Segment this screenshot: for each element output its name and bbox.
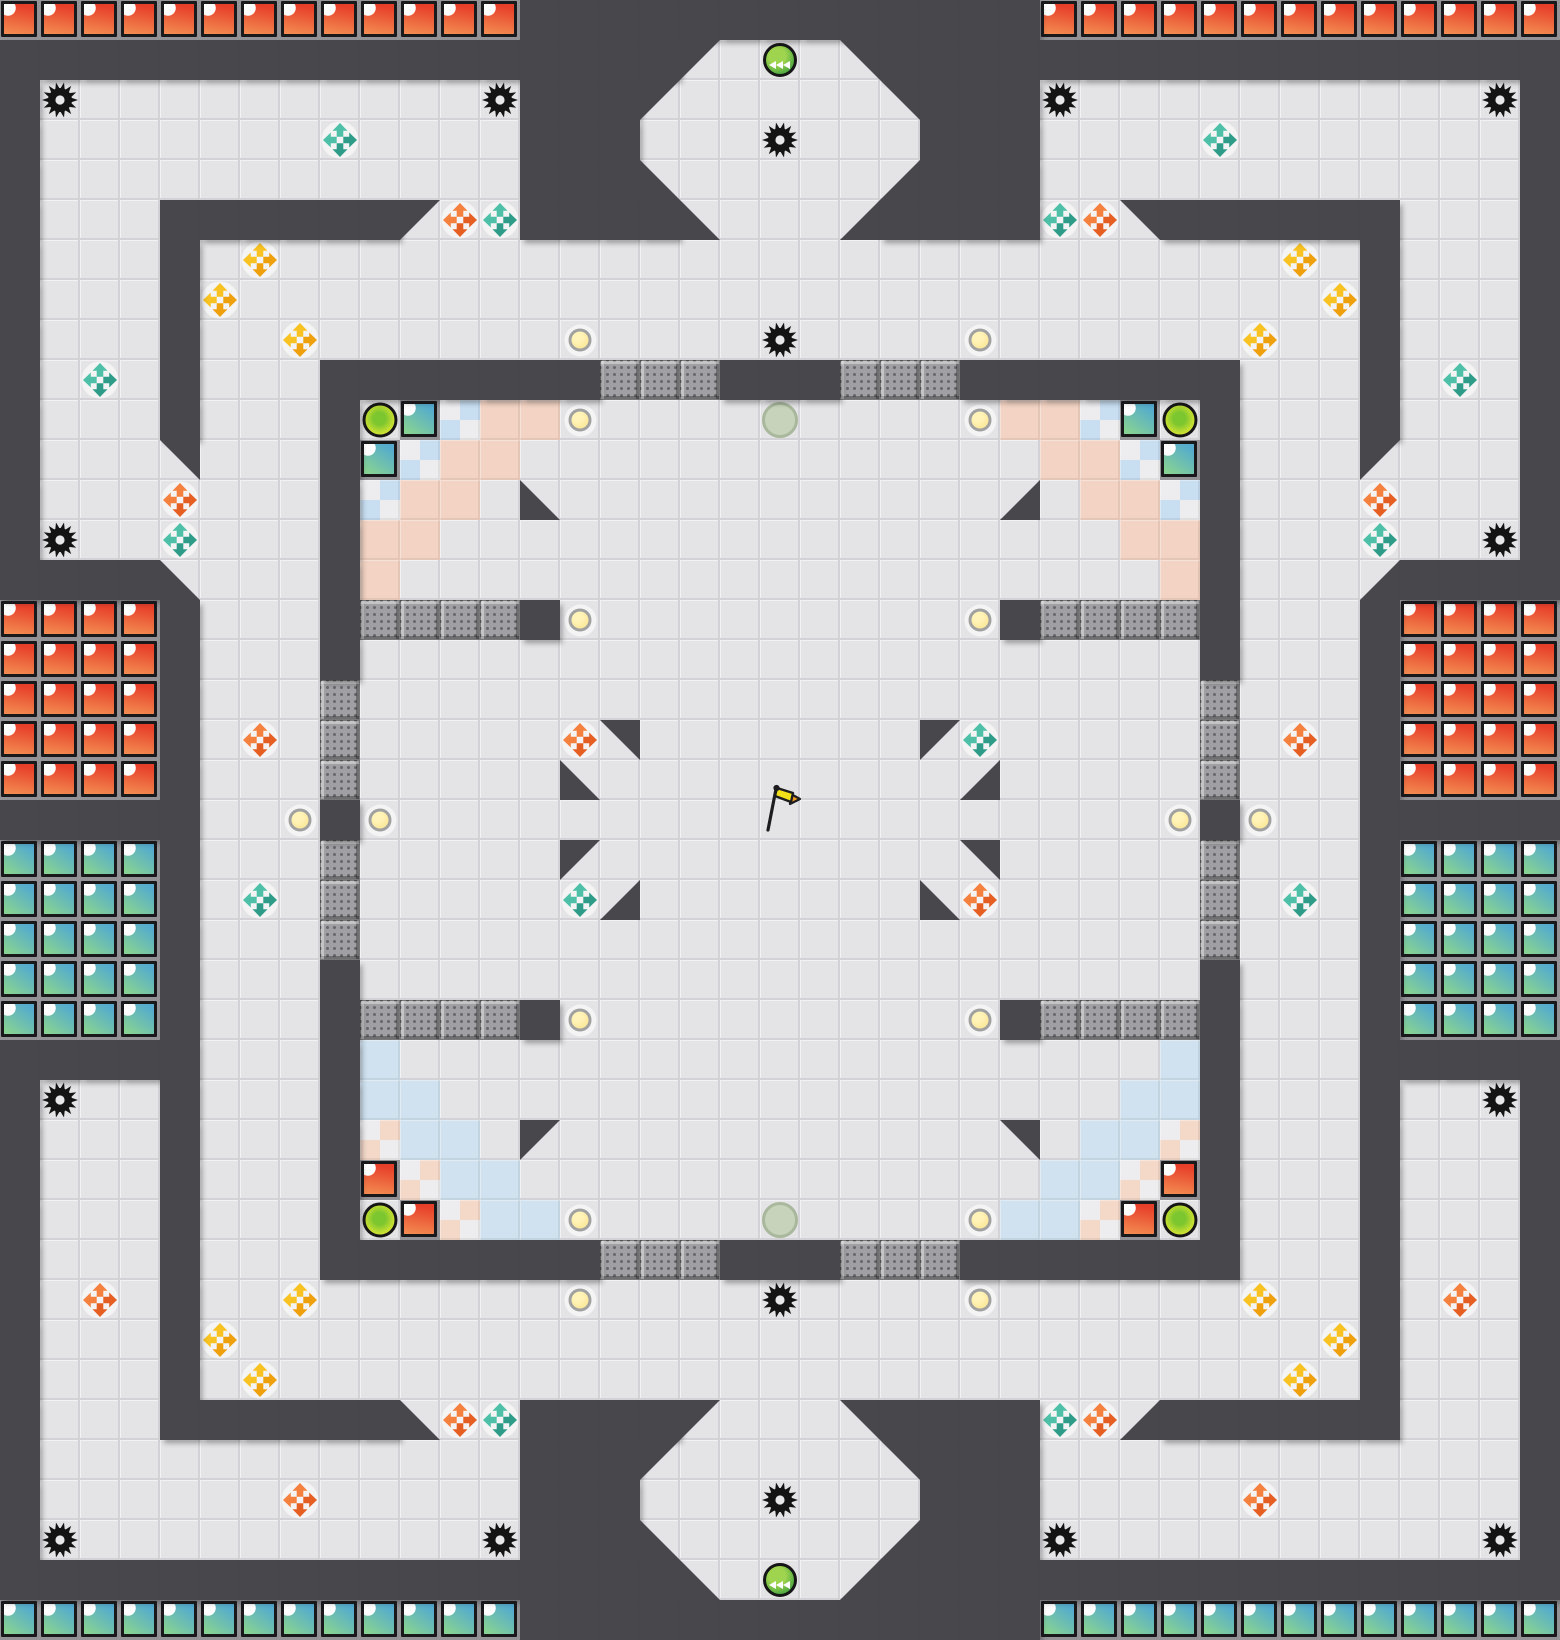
floor-tile bbox=[600, 440, 640, 480]
floor-tile bbox=[1240, 520, 1280, 560]
wall-tile bbox=[1520, 1320, 1560, 1360]
floor-tile bbox=[440, 80, 480, 120]
wall-tile bbox=[1520, 360, 1560, 400]
boost-pad-yellow[interactable] bbox=[1320, 280, 1360, 320]
boost-pad-teal[interactable] bbox=[160, 520, 200, 560]
boost-pad-teal[interactable] bbox=[1040, 1400, 1080, 1440]
boost-pad-yellow[interactable] bbox=[240, 240, 280, 280]
floor-tile bbox=[1240, 120, 1280, 160]
floor-tile bbox=[40, 1440, 80, 1480]
floor-tile bbox=[440, 1440, 480, 1480]
wall-tile bbox=[320, 480, 360, 520]
grate-tile bbox=[600, 360, 640, 400]
floor-tile bbox=[920, 280, 960, 320]
floor-tile bbox=[280, 1240, 320, 1280]
boost-pad-orange[interactable] bbox=[1080, 1400, 1120, 1440]
wall-tile bbox=[1520, 440, 1560, 480]
chevron-icon bbox=[769, 61, 776, 69]
red-team-tile bbox=[1400, 680, 1440, 720]
floor-tile bbox=[40, 120, 80, 160]
floor-tile bbox=[1280, 840, 1320, 880]
floor-tile bbox=[1280, 360, 1320, 400]
boost-pad-teal[interactable] bbox=[480, 1400, 520, 1440]
wall-tile bbox=[1520, 200, 1560, 240]
floor-tile bbox=[760, 200, 800, 240]
boost-pad-teal[interactable] bbox=[80, 360, 120, 400]
floor-tile bbox=[760, 840, 800, 880]
wall-tile bbox=[200, 200, 240, 240]
wall-tile bbox=[160, 1120, 200, 1160]
wall-tile bbox=[1400, 40, 1440, 80]
flag-icon[interactable] bbox=[760, 800, 800, 840]
wall-tile bbox=[560, 1440, 600, 1480]
wall-tile bbox=[520, 600, 560, 640]
boost-pad-teal[interactable] bbox=[1200, 120, 1240, 160]
teal-tile-face bbox=[1401, 961, 1437, 997]
teal-tile-face bbox=[401, 401, 437, 437]
red-tile-face bbox=[1401, 721, 1437, 757]
pink-checker-tile bbox=[1160, 1120, 1200, 1160]
boost-pad-orange[interactable] bbox=[1240, 1480, 1280, 1520]
floor-tile bbox=[200, 840, 240, 880]
floor-tile bbox=[600, 1360, 640, 1400]
boost-pad-teal[interactable] bbox=[320, 120, 360, 160]
floor-tile bbox=[600, 320, 640, 360]
floor-tile bbox=[1240, 1440, 1280, 1480]
floor-tile bbox=[1240, 560, 1280, 600]
teal-tile-face bbox=[121, 921, 157, 957]
floor-tile bbox=[1480, 360, 1520, 400]
floor-tile bbox=[680, 1280, 720, 1320]
floor-tile bbox=[600, 600, 640, 640]
floor-tile bbox=[1400, 480, 1440, 520]
wall-tile bbox=[560, 80, 600, 120]
yellow-dot[interactable] bbox=[960, 400, 1000, 440]
floor-tile bbox=[920, 960, 960, 1000]
button-face bbox=[1163, 403, 1198, 438]
floor-tile bbox=[240, 600, 280, 640]
floor-tile bbox=[1320, 1240, 1360, 1280]
floor-tile bbox=[680, 680, 720, 720]
floor-tile bbox=[280, 760, 320, 800]
floor-tile bbox=[920, 920, 960, 960]
floor-tile bbox=[800, 1200, 840, 1240]
boost-pad-yellow[interactable] bbox=[200, 280, 240, 320]
floor-tile bbox=[880, 1040, 920, 1080]
floor-tile bbox=[880, 1200, 920, 1240]
corner-button[interactable] bbox=[1160, 1200, 1200, 1240]
boost-pad-teal[interactable] bbox=[560, 880, 600, 920]
wall-tile bbox=[560, 1560, 600, 1600]
floor-tile bbox=[1440, 240, 1480, 280]
wall-tile bbox=[320, 440, 360, 480]
floor-tile bbox=[720, 920, 760, 960]
floor-tile bbox=[400, 880, 440, 920]
floor-tile bbox=[1440, 480, 1480, 520]
floor-tile bbox=[720, 1000, 760, 1040]
wall-tile bbox=[1200, 400, 1240, 440]
floor-tile bbox=[1440, 80, 1480, 120]
wall-tile bbox=[320, 1240, 360, 1280]
floor-tile bbox=[880, 480, 920, 520]
yellow-dot[interactable] bbox=[960, 320, 1000, 360]
boost-pad-orange[interactable] bbox=[440, 1400, 480, 1440]
corner-button[interactable] bbox=[1160, 400, 1200, 440]
floor-tile bbox=[120, 1200, 160, 1240]
yellow-dot[interactable] bbox=[280, 800, 320, 840]
boost-pad-yellow[interactable] bbox=[200, 1320, 240, 1360]
floor-tile bbox=[1240, 1160, 1280, 1200]
boost-pad-yellow[interactable] bbox=[1240, 1280, 1280, 1320]
floor-tile bbox=[200, 520, 240, 560]
wall-tile bbox=[920, 200, 960, 240]
floor-tile bbox=[480, 1320, 520, 1360]
wall-tile bbox=[520, 1400, 560, 1440]
floor-tile bbox=[720, 1440, 760, 1480]
floor-tile bbox=[320, 1280, 360, 1320]
wall-tile bbox=[0, 1520, 40, 1560]
wall-tile bbox=[1400, 1560, 1440, 1600]
floor-tile bbox=[1280, 1000, 1320, 1040]
wall-tile bbox=[1160, 1400, 1200, 1440]
boost-pad-yellow[interactable] bbox=[1320, 1320, 1360, 1360]
wall-tile bbox=[840, 0, 880, 40]
red-tile-face bbox=[1521, 721, 1557, 757]
floor-tile bbox=[840, 120, 880, 160]
floor-tile bbox=[760, 720, 800, 760]
boost-pad-orange[interactable] bbox=[440, 200, 480, 240]
floor-tile bbox=[200, 160, 240, 200]
floor-tile bbox=[1160, 1360, 1200, 1400]
floor-tile bbox=[160, 80, 200, 120]
yellow-dot[interactable] bbox=[1160, 800, 1200, 840]
boost-pad-orange[interactable] bbox=[280, 1480, 320, 1520]
grate-tile bbox=[320, 840, 360, 880]
floor-tile bbox=[720, 680, 760, 720]
boost-pad-orange[interactable] bbox=[80, 1280, 120, 1320]
floor-tile bbox=[1280, 480, 1320, 520]
teal-tile-face bbox=[121, 1001, 157, 1037]
wall-tile bbox=[160, 280, 200, 320]
floor-tile bbox=[920, 400, 960, 440]
floor-tile bbox=[720, 880, 760, 920]
floor-tile bbox=[1000, 960, 1040, 1000]
wall-tile bbox=[1480, 1040, 1520, 1080]
floor-tile bbox=[240, 560, 280, 600]
floor-tile bbox=[520, 320, 560, 360]
floor-tile bbox=[880, 600, 920, 640]
wall-tile bbox=[1400, 800, 1440, 840]
red-team-tile bbox=[120, 680, 160, 720]
wall-tile bbox=[640, 200, 680, 240]
wall-tile bbox=[40, 800, 80, 840]
floor-tile bbox=[760, 880, 800, 920]
floor-tile bbox=[360, 760, 400, 800]
boost-pad-yellow[interactable] bbox=[1240, 320, 1280, 360]
floor-tile bbox=[120, 160, 160, 200]
floor-tile bbox=[920, 600, 960, 640]
wall-tile bbox=[680, 1600, 720, 1640]
floor-tile bbox=[1480, 1240, 1520, 1280]
blue-zone-tile bbox=[1120, 1120, 1160, 1160]
floor-tile bbox=[200, 1040, 240, 1080]
floor-tile bbox=[960, 520, 1000, 560]
yellow-dot[interactable] bbox=[360, 800, 400, 840]
floor-tile bbox=[280, 640, 320, 680]
yellow-dot[interactable] bbox=[560, 1280, 600, 1320]
teal-team-tile bbox=[440, 1600, 480, 1640]
teal-tile-face bbox=[1481, 961, 1517, 997]
wall-tile bbox=[800, 360, 840, 400]
wall-tile bbox=[0, 1360, 40, 1400]
floor-tile bbox=[920, 800, 960, 840]
dot-ball bbox=[969, 1009, 992, 1032]
wall-tile bbox=[1240, 40, 1280, 80]
floor-tile bbox=[40, 280, 80, 320]
teal-team-tile bbox=[80, 880, 120, 920]
floor-tile bbox=[880, 760, 920, 800]
red-team-tile bbox=[80, 0, 120, 40]
floor-tile bbox=[1240, 880, 1280, 920]
floor-tile bbox=[1120, 760, 1160, 800]
muted-button[interactable] bbox=[760, 400, 800, 440]
corner-button[interactable] bbox=[360, 1200, 400, 1240]
wall-tile bbox=[160, 640, 200, 680]
floor-tile bbox=[1480, 280, 1520, 320]
floor-tile bbox=[1240, 80, 1280, 120]
boost-pad-teal[interactable] bbox=[960, 720, 1000, 760]
floor-tile bbox=[680, 280, 720, 320]
floor-tile bbox=[640, 1000, 680, 1040]
floor-tile bbox=[640, 920, 680, 960]
floor-tile bbox=[280, 1160, 320, 1200]
grate-tile bbox=[1200, 760, 1240, 800]
teal-team-tile bbox=[240, 1600, 280, 1640]
teal-tile-face bbox=[41, 1001, 77, 1037]
boost-pad-yellow[interactable] bbox=[240, 1360, 280, 1400]
wall-tile bbox=[0, 1320, 40, 1360]
red-tile-face bbox=[41, 681, 77, 717]
floor-tile bbox=[720, 720, 760, 760]
yellow-dot[interactable] bbox=[560, 1000, 600, 1040]
muted-button[interactable] bbox=[760, 1200, 800, 1240]
floor-tile bbox=[240, 1480, 280, 1520]
floor-tile bbox=[360, 160, 400, 200]
floor-tile bbox=[600, 1000, 640, 1040]
floor-tile bbox=[680, 600, 720, 640]
floor-tile bbox=[800, 1280, 840, 1320]
boost-pad-orange[interactable] bbox=[1440, 1280, 1480, 1320]
boost-pad-yellow[interactable] bbox=[1280, 1360, 1320, 1400]
floor-tile bbox=[520, 560, 560, 600]
floor-tile bbox=[880, 320, 920, 360]
wall-tile bbox=[320, 1040, 360, 1080]
yellow-dot[interactable] bbox=[960, 1200, 1000, 1240]
wall-tile bbox=[1320, 1560, 1360, 1600]
floor-tile bbox=[720, 160, 760, 200]
boost-pad-yellow[interactable] bbox=[280, 320, 320, 360]
teal-tile-face bbox=[361, 441, 397, 477]
dot-ball bbox=[969, 409, 992, 432]
floor-tile bbox=[80, 200, 120, 240]
floor-tile bbox=[560, 920, 600, 960]
grate-tile bbox=[360, 600, 400, 640]
yellow-dot[interactable] bbox=[560, 320, 600, 360]
yellow-dot[interactable] bbox=[1240, 800, 1280, 840]
floor-tile bbox=[200, 1440, 240, 1480]
floor-tile bbox=[1080, 1280, 1120, 1320]
wall-tile bbox=[960, 1480, 1000, 1520]
boost-pad-orange[interactable] bbox=[240, 720, 280, 760]
floor-tile bbox=[280, 1040, 320, 1080]
yellow-dot[interactable] bbox=[560, 1200, 600, 1240]
floor-tile bbox=[1440, 1160, 1480, 1200]
wall-tile bbox=[520, 200, 560, 240]
wall-tile bbox=[1080, 1560, 1120, 1600]
red-team-tile bbox=[40, 760, 80, 800]
floor-tile bbox=[720, 80, 760, 120]
wall-tile bbox=[1360, 1000, 1400, 1040]
wall-tile bbox=[1000, 1600, 1040, 1640]
teal-tile-face bbox=[1321, 1601, 1357, 1637]
wall-tile bbox=[1360, 800, 1400, 840]
red-tile-face bbox=[1401, 681, 1437, 717]
portal-icon[interactable] bbox=[760, 1560, 800, 1600]
floor-tile bbox=[880, 1480, 920, 1520]
floor-tile bbox=[760, 280, 800, 320]
floor-tile bbox=[600, 1120, 640, 1160]
teal-tile-face bbox=[41, 921, 77, 957]
boost-pad-yellow[interactable] bbox=[280, 1280, 320, 1320]
corner-button[interactable] bbox=[360, 400, 400, 440]
red-team-tile bbox=[160, 0, 200, 40]
floor-tile bbox=[80, 1400, 120, 1440]
boost-pad-teal[interactable] bbox=[1040, 200, 1080, 240]
floor-tile bbox=[1480, 1480, 1520, 1520]
wall-tile bbox=[520, 1240, 560, 1280]
teal-team-tile bbox=[120, 960, 160, 1000]
floor-tile bbox=[1240, 1320, 1280, 1360]
teal-tile-face bbox=[1441, 961, 1477, 997]
yellow-dot[interactable] bbox=[560, 600, 600, 640]
boost-pad-orange[interactable] bbox=[560, 720, 600, 760]
boost-pad-teal[interactable] bbox=[480, 200, 520, 240]
floor-tile bbox=[80, 120, 120, 160]
wall-tile bbox=[960, 1400, 1000, 1440]
teal-tile-face bbox=[81, 1601, 117, 1637]
floor-tile bbox=[440, 640, 480, 680]
teal-tile-face bbox=[121, 841, 157, 877]
boost-pad-yellow[interactable] bbox=[1280, 240, 1320, 280]
boost-pad-orange[interactable] bbox=[160, 480, 200, 520]
floor-tile bbox=[1400, 1320, 1440, 1360]
floor-tile bbox=[480, 840, 520, 880]
floor-tile bbox=[200, 400, 240, 440]
wall-tile bbox=[1120, 1240, 1160, 1280]
wall-tile bbox=[560, 1600, 600, 1640]
wall-tile bbox=[1360, 280, 1400, 320]
portal-icon[interactable] bbox=[760, 40, 800, 80]
floor-tile bbox=[400, 1040, 440, 1080]
wall-tile bbox=[0, 1280, 40, 1320]
red-team-tile bbox=[360, 0, 400, 40]
red-tile-face bbox=[1481, 681, 1517, 717]
floor-tile bbox=[800, 1360, 840, 1400]
floor-tile bbox=[800, 680, 840, 720]
boost-pad-orange[interactable] bbox=[1080, 200, 1120, 240]
wall-tile bbox=[960, 80, 1000, 120]
wall-tile bbox=[720, 1600, 760, 1640]
boost-pad-orange[interactable] bbox=[1360, 480, 1400, 520]
floor-tile bbox=[1320, 240, 1360, 280]
floor-tile bbox=[880, 720, 920, 760]
teal-team-tile bbox=[1440, 880, 1480, 920]
floor-tile bbox=[800, 480, 840, 520]
yellow-dot[interactable] bbox=[960, 1000, 1000, 1040]
yellow-dot[interactable] bbox=[560, 400, 600, 440]
floor-tile bbox=[1320, 920, 1360, 960]
grate-tile bbox=[480, 1000, 520, 1040]
floor-tile bbox=[1040, 1080, 1080, 1120]
wall-tile bbox=[80, 560, 120, 600]
boost-pad-orange[interactable] bbox=[960, 880, 1000, 920]
floor-tile bbox=[280, 720, 320, 760]
wall-tile bbox=[1160, 40, 1200, 80]
floor-tile bbox=[360, 280, 400, 320]
boost-pad-teal[interactable] bbox=[1360, 520, 1400, 560]
teal-tile-face bbox=[1441, 1001, 1477, 1037]
wall-tile bbox=[160, 1360, 200, 1400]
floor-tile bbox=[520, 280, 560, 320]
floor-tile bbox=[800, 1160, 840, 1200]
floor-tile bbox=[520, 880, 560, 920]
floor-tile bbox=[480, 1440, 520, 1480]
floor-tile bbox=[280, 880, 320, 920]
floor-tile bbox=[240, 1000, 280, 1040]
floor-tile bbox=[1320, 1440, 1360, 1480]
floor-tile bbox=[920, 680, 960, 720]
floor-tile bbox=[1240, 1200, 1280, 1240]
wall-tile bbox=[1080, 40, 1120, 80]
floor-tile bbox=[1280, 680, 1320, 720]
floor-tile bbox=[520, 1080, 560, 1120]
red-team-tile bbox=[1120, 1200, 1160, 1240]
boost-pad-teal[interactable] bbox=[240, 880, 280, 920]
red-tile-face bbox=[81, 601, 117, 637]
teal-team-tile bbox=[1480, 960, 1520, 1000]
floor-tile bbox=[520, 720, 560, 760]
boost-pad-orange[interactable] bbox=[1280, 720, 1320, 760]
wall-tile bbox=[1200, 40, 1240, 80]
yellow-dot[interactable] bbox=[960, 600, 1000, 640]
boost-pad-teal[interactable] bbox=[1280, 880, 1320, 920]
wall-tile bbox=[960, 160, 1000, 200]
floor-tile bbox=[1280, 1520, 1320, 1560]
red-team-tile bbox=[400, 1200, 440, 1240]
teal-team-tile bbox=[1040, 1600, 1080, 1640]
floor-tile bbox=[560, 560, 600, 600]
yellow-dot[interactable] bbox=[960, 1280, 1000, 1320]
wall-tile bbox=[0, 240, 40, 280]
floor-tile bbox=[600, 520, 640, 560]
wall-tile bbox=[1080, 1240, 1120, 1280]
floor-tile bbox=[840, 640, 880, 680]
boost-pad-teal[interactable] bbox=[1440, 360, 1480, 400]
floor-tile bbox=[560, 1080, 600, 1120]
floor-tile bbox=[320, 320, 360, 360]
floor-tile bbox=[760, 680, 800, 720]
floor-tile bbox=[800, 560, 840, 600]
